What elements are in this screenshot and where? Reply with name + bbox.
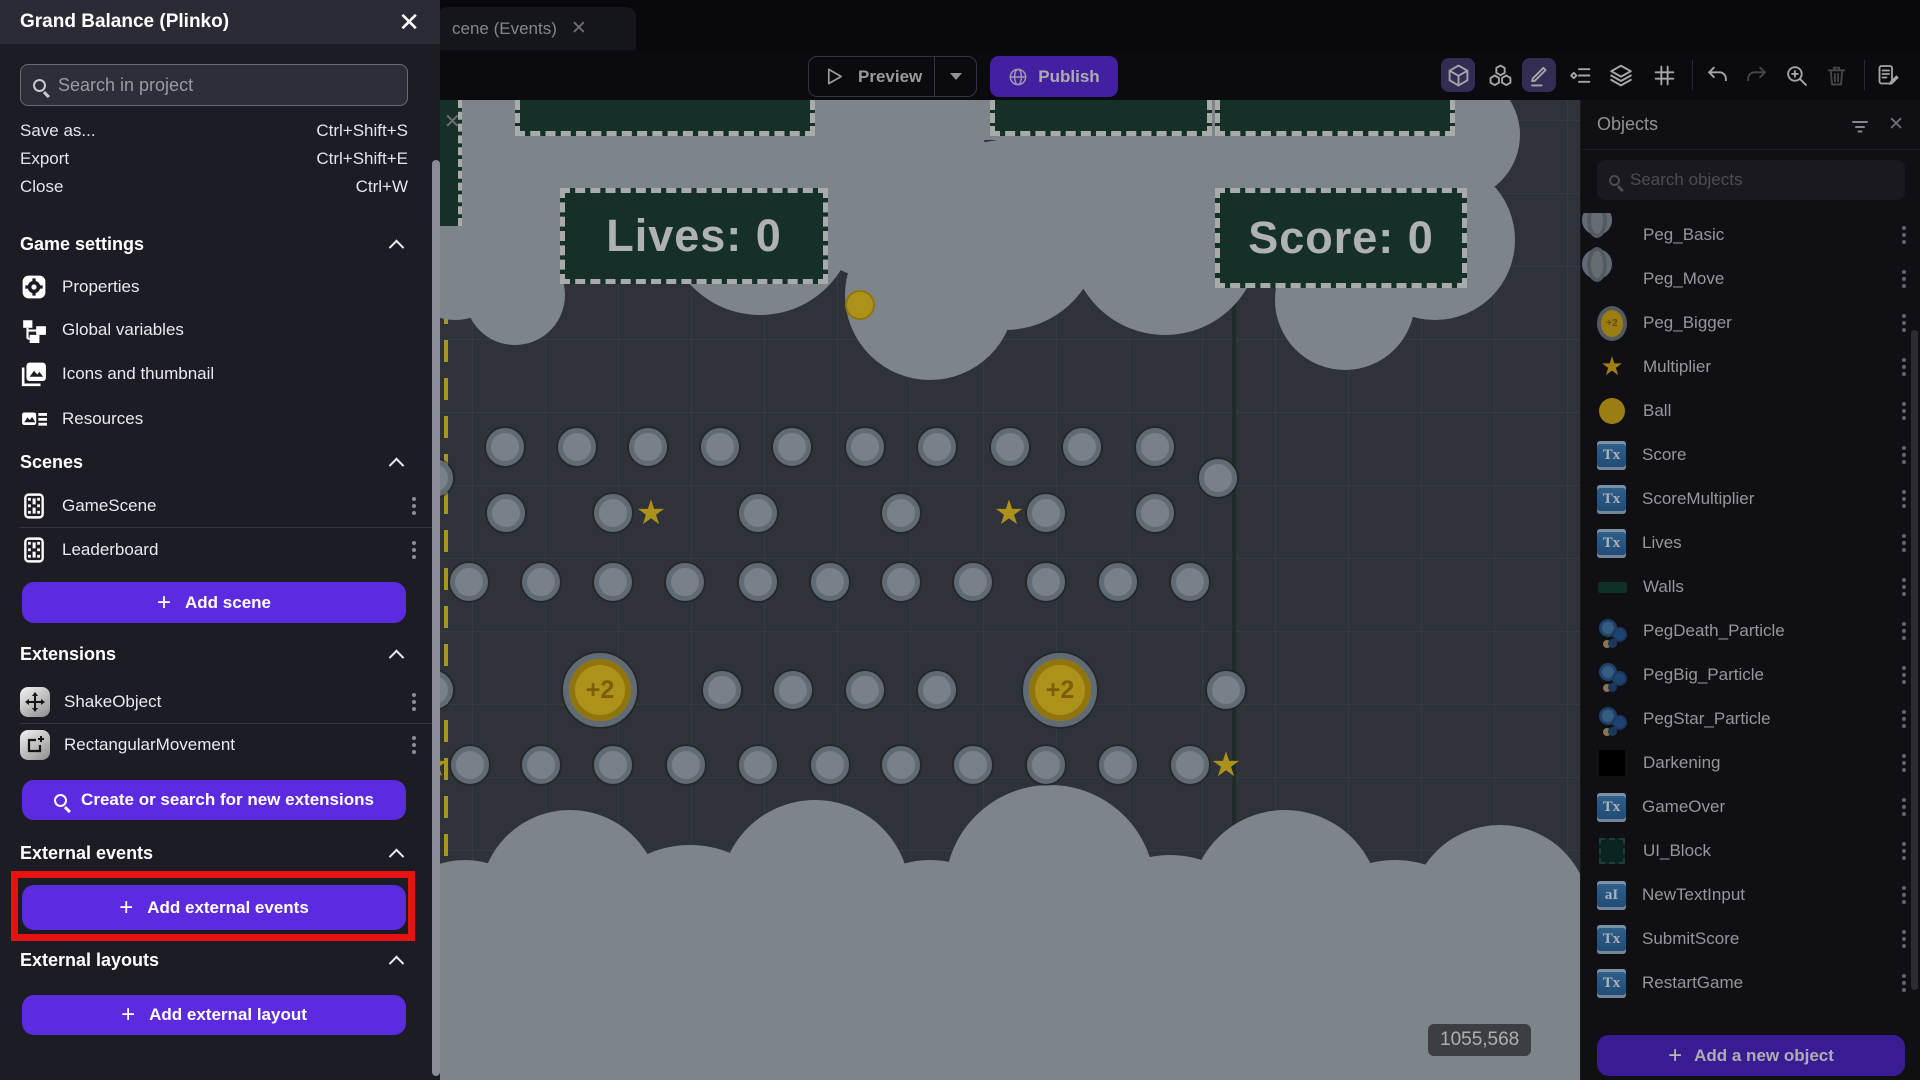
object-name: SubmitScore bbox=[1642, 929, 1886, 949]
tab-bar bbox=[440, 0, 1920, 50]
chevron-up-icon bbox=[389, 848, 405, 864]
shortcut-label: Ctrl+Shift+S bbox=[316, 121, 408, 141]
grid-icon bbox=[1653, 64, 1676, 87]
chevron-down-icon bbox=[950, 73, 962, 80]
peg-sprite bbox=[954, 746, 992, 784]
peg-sprite bbox=[882, 494, 920, 532]
textinput-icon: aI bbox=[1597, 881, 1626, 910]
uiblock-icon bbox=[1597, 836, 1627, 866]
search-icon bbox=[54, 794, 67, 807]
object-row[interactable]: PegBig_Particle bbox=[1581, 653, 1920, 697]
object-name: Lives bbox=[1642, 533, 1886, 553]
peg-sprite bbox=[739, 746, 777, 784]
zoom-in-button[interactable] bbox=[1779, 58, 1813, 92]
plus-icon: + bbox=[121, 1003, 135, 1027]
film-icon bbox=[20, 492, 48, 520]
peg-sprite bbox=[703, 671, 741, 709]
scene-item-gamescene[interactable]: GameScene bbox=[0, 488, 440, 524]
object-row[interactable]: TxRestartGame bbox=[1581, 961, 1920, 1005]
scene-menu-icon[interactable] bbox=[408, 548, 420, 552]
object-menu-icon[interactable] bbox=[1902, 673, 1906, 677]
cubes-group-icon bbox=[1489, 64, 1512, 87]
divider bbox=[20, 723, 436, 724]
delete-button[interactable] bbox=[1819, 58, 1853, 92]
filter-icon[interactable] bbox=[1850, 115, 1870, 135]
object-row[interactable]: PegStar_Particle bbox=[1581, 697, 1920, 741]
object-name: NewTextInput bbox=[1642, 885, 1886, 905]
peg-sprite bbox=[918, 428, 956, 466]
peg-sprite bbox=[774, 671, 812, 709]
objects-scrollbar[interactable] bbox=[1911, 330, 1918, 990]
particle-icon bbox=[1597, 616, 1627, 646]
object-menu-icon[interactable] bbox=[1902, 277, 1906, 281]
variables-tree-icon bbox=[20, 316, 48, 344]
object-row[interactable]: Darkening bbox=[1581, 741, 1920, 785]
section-external-layouts[interactable]: External layouts bbox=[0, 944, 440, 976]
pegbig-icon bbox=[1597, 308, 1627, 338]
section-scenes[interactable]: Scenes bbox=[0, 446, 440, 478]
gear-icon bbox=[20, 273, 48, 301]
object-menu-icon[interactable] bbox=[1902, 937, 1906, 941]
object-name: PegStar_Particle bbox=[1643, 709, 1886, 729]
object-row[interactable]: UI_Block bbox=[1581, 829, 1920, 873]
object-menu-icon[interactable] bbox=[1902, 761, 1906, 765]
peg-sprite bbox=[918, 671, 956, 709]
rectangle-plus-icon bbox=[20, 730, 50, 760]
peg-sprite bbox=[739, 494, 777, 532]
add-external-layout-button[interactable]: + Add external layout bbox=[22, 995, 406, 1035]
object-name: Darkening bbox=[1643, 753, 1886, 773]
project-title: Grand Balance (Plinko) bbox=[20, 11, 398, 33]
object-name: GameOver bbox=[1642, 797, 1886, 817]
object-menu-icon[interactable] bbox=[1902, 805, 1906, 809]
object-row[interactable]: Ball bbox=[1581, 389, 1920, 433]
peg-icon bbox=[1582, 249, 1612, 279]
object-name: ScoreMultiplier bbox=[1642, 489, 1886, 509]
cursor-coordinates-badge: 1055,568 bbox=[1428, 1024, 1531, 1056]
object-menu-icon[interactable] bbox=[1902, 717, 1906, 721]
sstar-sprite: ★ bbox=[1211, 748, 1241, 782]
text-icon: Tx bbox=[1597, 925, 1626, 954]
object-name: UI_Block bbox=[1643, 841, 1886, 861]
peg-sprite bbox=[1027, 746, 1065, 784]
sidebar-item-properties[interactable]: Properties bbox=[0, 269, 440, 305]
peg-sprite bbox=[1171, 746, 1209, 784]
sidebar-item-global-variables[interactable]: Global variables bbox=[0, 312, 440, 348]
text-icon: Tx bbox=[1597, 969, 1626, 998]
preview-label: Preview bbox=[858, 67, 922, 87]
toolbar bbox=[440, 50, 1920, 100]
objects-search-input[interactable] bbox=[1630, 170, 1893, 190]
project-search-input[interactable] bbox=[58, 75, 395, 96]
particle-icon bbox=[1597, 704, 1627, 734]
peg-sprite bbox=[1099, 746, 1137, 784]
peg-sprite bbox=[1099, 563, 1137, 601]
object-name: RestartGame bbox=[1642, 973, 1886, 993]
preview-dropdown-button[interactable] bbox=[934, 57, 976, 96]
peg-sprite bbox=[773, 428, 811, 466]
black-icon bbox=[1597, 748, 1627, 778]
chevron-up-icon bbox=[389, 239, 405, 255]
peg-sprite bbox=[629, 428, 667, 466]
sstar-sprite: ★ bbox=[994, 496, 1024, 530]
plus-icon: + bbox=[157, 591, 171, 615]
redo-button[interactable] bbox=[1739, 58, 1773, 92]
divider bbox=[20, 527, 436, 528]
menu-item-close[interactable]: Close Ctrl+W bbox=[0, 172, 440, 202]
object-row[interactable]: Peg_Move bbox=[1581, 257, 1920, 301]
add-scene-button[interactable]: + Add scene bbox=[22, 582, 406, 623]
menu-item-export[interactable]: Export Ctrl+Shift+E bbox=[0, 144, 440, 174]
peg-sprite bbox=[882, 746, 920, 784]
extension-item-rectangularmovement[interactable]: RectangularMovement bbox=[0, 727, 440, 763]
object-row[interactable]: PegDeath_Particle bbox=[1581, 609, 1920, 653]
peg-sprite bbox=[882, 563, 920, 601]
object-menu-icon[interactable] bbox=[1902, 233, 1906, 237]
peg-sprite bbox=[811, 563, 849, 601]
peg-sprite bbox=[594, 494, 632, 532]
object-name: Score bbox=[1642, 445, 1886, 465]
object-menu-icon[interactable] bbox=[1902, 541, 1906, 545]
tab-scene-events[interactable]: cene (Events) ✕ bbox=[438, 7, 636, 50]
object-menu-icon[interactable] bbox=[1902, 365, 1906, 369]
tab-label: cene (Events) bbox=[452, 19, 557, 39]
resources-icon bbox=[20, 405, 48, 433]
peg-sprite bbox=[1136, 494, 1174, 532]
undo-icon bbox=[1706, 64, 1729, 87]
add-new-object-button[interactable]: + Add a new object bbox=[1597, 1035, 1905, 1076]
object-menu-icon[interactable] bbox=[1902, 849, 1906, 853]
open-events-editor-button[interactable] bbox=[1872, 58, 1906, 92]
star-icon: ★ bbox=[1597, 352, 1627, 382]
zoom-in-icon bbox=[1785, 64, 1808, 87]
edit-mode-button[interactable] bbox=[1522, 58, 1556, 92]
extension-menu-icon[interactable] bbox=[408, 700, 420, 704]
peg-sprite bbox=[594, 746, 632, 784]
sidebar-item-resources[interactable]: Resources bbox=[0, 401, 440, 437]
extension-item-shakeobject[interactable]: ShakeObject bbox=[0, 684, 440, 720]
peg-sprite bbox=[666, 563, 704, 601]
chevron-up-icon bbox=[389, 955, 405, 971]
object-row[interactable]: aINewTextInput bbox=[1581, 873, 1920, 917]
particle-icon bbox=[1597, 660, 1627, 690]
text-icon: Tx bbox=[1597, 485, 1626, 514]
peg-sprite bbox=[739, 563, 777, 601]
panel-close-icon[interactable]: ✕ bbox=[444, 112, 461, 132]
drawer-scrollbar[interactable] bbox=[432, 160, 440, 1076]
peg-sprite bbox=[440, 671, 453, 709]
peg-sprite bbox=[701, 428, 739, 466]
text-icon: Tx bbox=[1597, 441, 1626, 470]
object-row[interactable]: Walls bbox=[1581, 565, 1920, 609]
object-menu-icon[interactable] bbox=[1902, 497, 1906, 501]
shortcut-label: Ctrl+Shift+E bbox=[316, 149, 408, 169]
object-row[interactable]: TxScore bbox=[1581, 433, 1920, 477]
globe-icon bbox=[1008, 67, 1028, 87]
peg-sprite bbox=[1027, 494, 1065, 532]
object-menu-icon[interactable] bbox=[1902, 629, 1906, 633]
peg-sprite bbox=[846, 428, 884, 466]
peg-sprite bbox=[991, 428, 1029, 466]
project-search[interactable] bbox=[20, 64, 408, 106]
grid-button[interactable] bbox=[1647, 58, 1681, 92]
object-menu-icon[interactable] bbox=[1902, 409, 1906, 413]
object-name: Walls bbox=[1643, 577, 1886, 597]
play-icon bbox=[825, 67, 844, 86]
sball-sprite bbox=[845, 290, 875, 320]
object-name: Multiplier bbox=[1643, 357, 1886, 377]
peg-sprite bbox=[486, 428, 524, 466]
peg-sprite bbox=[954, 563, 992, 601]
objects-panel-header: Objects ✕ bbox=[1581, 100, 1920, 150]
object-name: PegDeath_Particle bbox=[1643, 621, 1886, 641]
walls-icon bbox=[1597, 572, 1627, 602]
scene-menu-icon[interactable] bbox=[408, 504, 420, 508]
film-icon bbox=[20, 536, 48, 564]
section-game-settings[interactable]: Game settings bbox=[0, 228, 440, 260]
sidebar-item-icons-thumbnail[interactable]: Icons and thumbnail bbox=[0, 356, 440, 392]
search-icon bbox=[1609, 175, 1620, 186]
undo-button[interactable] bbox=[1700, 58, 1734, 92]
object-row[interactable]: Peg_Basic bbox=[1581, 213, 1920, 257]
toggle-objects-panel-button[interactable] bbox=[1441, 58, 1475, 92]
peg-sprite bbox=[667, 746, 705, 784]
publish-label: Publish bbox=[1038, 67, 1099, 87]
events-sheet-icon bbox=[1877, 63, 1901, 87]
text-icon: Tx bbox=[1597, 529, 1626, 558]
gdevelop-editor: cene (Events) ✕ Preview Publish bbox=[0, 0, 1920, 1080]
peg-sprite bbox=[1063, 428, 1101, 466]
object-row[interactable]: Peg_Bigger bbox=[1581, 301, 1920, 345]
peg-sprite bbox=[487, 494, 525, 532]
drawer-close-icon[interactable]: ✕ bbox=[398, 9, 420, 35]
toolbar-divider bbox=[1864, 60, 1865, 90]
peg-sprite bbox=[1136, 428, 1174, 466]
plus-icon: + bbox=[1668, 1044, 1682, 1068]
peg-sprite bbox=[440, 459, 453, 497]
object-groups-button[interactable] bbox=[1483, 58, 1517, 92]
object-menu-icon[interactable] bbox=[1902, 321, 1906, 325]
search-extensions-button[interactable]: Create or search for new extensions bbox=[22, 780, 406, 820]
add-object-label: Add a new object bbox=[1694, 1046, 1834, 1066]
object-name: Peg_Basic bbox=[1643, 225, 1886, 245]
layers-button[interactable] bbox=[1604, 58, 1638, 92]
redo-icon bbox=[1745, 64, 1768, 87]
object-row[interactable]: TxGameOver bbox=[1581, 785, 1920, 829]
peg-icon bbox=[1582, 213, 1612, 235]
sstar-sprite: ★ bbox=[636, 496, 666, 530]
search-icon bbox=[33, 79, 46, 92]
shortcut-label: Ctrl+W bbox=[356, 177, 408, 197]
coin-sprite: +2 bbox=[1023, 653, 1097, 727]
object-name: Ball bbox=[1643, 401, 1886, 421]
objects-search[interactable] bbox=[1597, 160, 1905, 200]
objects-panel-close-icon[interactable]: ✕ bbox=[1888, 115, 1904, 134]
object-row[interactable]: TxScoreMultiplier bbox=[1581, 477, 1920, 521]
trash-icon bbox=[1825, 64, 1848, 87]
object-name: Peg_Move bbox=[1643, 269, 1886, 289]
text-icon: Tx bbox=[1597, 793, 1626, 822]
menu-item-save-as[interactable]: Save as... Ctrl+Shift+S bbox=[0, 116, 440, 146]
coin-sprite: +2 bbox=[563, 653, 637, 727]
drawer-header: Grand Balance (Plinko) ✕ bbox=[0, 0, 440, 44]
ball-icon bbox=[1597, 396, 1627, 426]
peg-sprite bbox=[811, 746, 849, 784]
sstar-sprite: ★ bbox=[440, 748, 449, 782]
objects-panel: Objects ✕ Peg_BasicPeg_MovePeg_Bigger★Mu… bbox=[1580, 100, 1920, 1080]
object-row[interactable]: TxLives bbox=[1581, 521, 1920, 565]
object-menu-icon[interactable] bbox=[1902, 453, 1906, 457]
layers-icon bbox=[1609, 63, 1633, 87]
shake-arrows-icon bbox=[20, 687, 50, 717]
object-menu-icon[interactable] bbox=[1902, 981, 1906, 985]
object-name: PegBig_Particle bbox=[1643, 665, 1886, 685]
peg-sprite bbox=[594, 563, 632, 601]
instances-list-icon bbox=[1569, 64, 1592, 87]
peg-sprite bbox=[1171, 563, 1209, 601]
peg-sprite bbox=[522, 746, 560, 784]
peg-sprite bbox=[1027, 563, 1065, 601]
peg-sprite bbox=[451, 746, 489, 784]
tab-close-icon[interactable]: ✕ bbox=[571, 19, 587, 38]
object-row[interactable]: TxSubmitScore bbox=[1581, 917, 1920, 961]
peg-sprite bbox=[522, 563, 560, 601]
scene-item-leaderboard[interactable]: Leaderboard bbox=[0, 532, 440, 568]
highlight-annotation-box bbox=[11, 871, 415, 941]
objects-panel-title: Objects bbox=[1597, 114, 1832, 135]
section-external-events[interactable]: External events bbox=[0, 837, 440, 869]
peg-sprite bbox=[450, 563, 488, 601]
peg-sprite bbox=[1199, 459, 1237, 497]
object-name: Peg_Bigger bbox=[1643, 313, 1886, 333]
section-extensions[interactable]: Extensions bbox=[0, 638, 440, 670]
chevron-up-icon bbox=[389, 457, 405, 473]
object-menu-icon[interactable] bbox=[1902, 585, 1906, 589]
preview-button[interactable]: Preview bbox=[808, 56, 977, 97]
peg-sprite bbox=[846, 671, 884, 709]
instances-list-button[interactable] bbox=[1563, 58, 1597, 92]
toolbar-divider bbox=[1692, 60, 1693, 90]
cube-icon bbox=[1447, 64, 1470, 87]
peg-sprite bbox=[1207, 671, 1245, 709]
chevron-up-icon bbox=[389, 649, 405, 665]
extension-menu-icon[interactable] bbox=[408, 743, 420, 747]
objects-list: Peg_BasicPeg_MovePeg_Bigger★MultiplierBa… bbox=[1581, 213, 1920, 1080]
object-row[interactable]: ★Multiplier bbox=[1581, 345, 1920, 389]
image-icon bbox=[20, 360, 48, 388]
object-menu-icon[interactable] bbox=[1902, 893, 1906, 897]
publish-button[interactable]: Publish bbox=[990, 56, 1118, 97]
peg-sprite bbox=[558, 428, 596, 466]
pencil-icon bbox=[1528, 64, 1551, 87]
